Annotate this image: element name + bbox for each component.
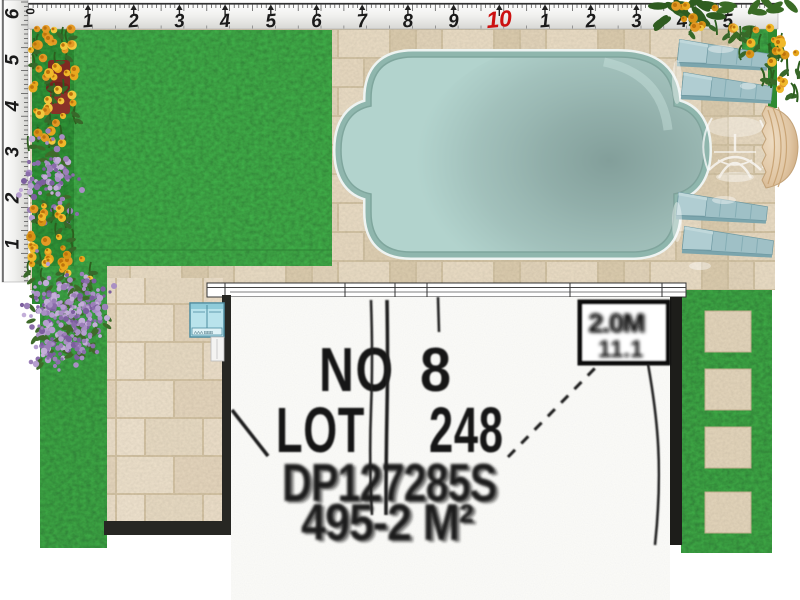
svg-text:6: 6 [3, 8, 24, 19]
svg-text:4: 4 [218, 11, 232, 33]
svg-text:10: 10 [485, 5, 513, 33]
svg-text:AAA BBB: AAA BBB [194, 330, 213, 335]
svg-text:11.1: 11.1 [598, 336, 643, 363]
svg-text:2: 2 [126, 11, 140, 33]
svg-text:4: 4 [3, 100, 24, 112]
svg-text:1: 1 [539, 11, 551, 33]
svg-text:1: 1 [82, 11, 94, 33]
svg-text:5: 5 [3, 54, 24, 65]
svg-text:2.0M: 2.0M [590, 309, 646, 339]
svg-text:495-2 M²: 495-2 M² [304, 496, 477, 554]
svg-text:3: 3 [3, 146, 24, 157]
svg-text:2: 2 [583, 11, 597, 33]
svg-text:1: 1 [3, 239, 24, 250]
svg-text:0: 0 [23, 8, 37, 15]
